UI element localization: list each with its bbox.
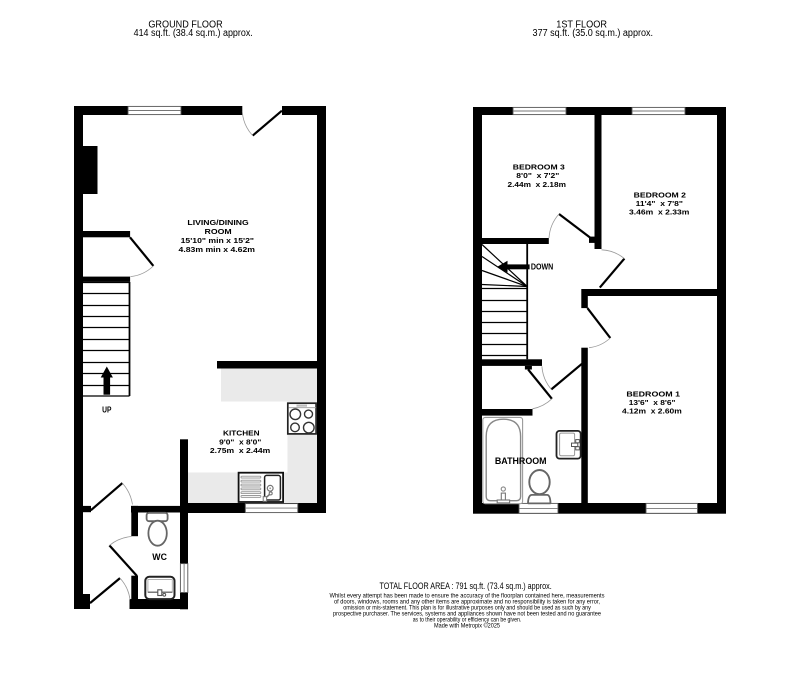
svg-text:2.44m x 2.18m: 2.44m x 2.18m — [508, 180, 567, 189]
svg-text:15'10" min x 15'2": 15'10" min x 15'2" — [181, 236, 254, 245]
svg-text:BATHROOM: BATHROOM — [495, 455, 547, 466]
svg-text:414 sq.ft. (38.4 sq.m.) approx: 414 sq.ft. (38.4 sq.m.) approx. — [134, 28, 253, 39]
svg-text:UP: UP — [102, 405, 112, 414]
svg-text:ROOM: ROOM — [205, 227, 232, 236]
svg-text:WC: WC — [152, 551, 167, 562]
svg-text:9'0" x 8'0": 9'0" x 8'0" — [219, 437, 261, 446]
svg-text:DOWN: DOWN — [531, 262, 554, 271]
svg-text:2.75m x 2.44m: 2.75m x 2.44m — [210, 446, 271, 455]
svg-text:13'6" x 8'6": 13'6" x 8'6" — [629, 398, 676, 407]
svg-text:3.46m x 2.33m: 3.46m x 2.33m — [629, 208, 690, 217]
svg-text:4.83m min x 4.62m: 4.83m min x 4.62m — [179, 245, 256, 254]
svg-text:KITCHEN: KITCHEN — [223, 429, 260, 438]
svg-text:Made with Metropix ©2025: Made with Metropix ©2025 — [434, 622, 500, 630]
svg-text:377 sq.ft. (35.0 sq.m.) approx: 377 sq.ft. (35.0 sq.m.) approx. — [533, 28, 654, 39]
svg-text:TOTAL FLOOR AREA : 791 sq.ft.: TOTAL FLOOR AREA : 791 sq.ft. (73.4 sq.m… — [380, 581, 552, 591]
svg-text:LIVING/DINING: LIVING/DINING — [187, 218, 249, 227]
svg-text:BEDROOM 1: BEDROOM 1 — [626, 389, 680, 398]
svg-text:4.12m x 2.60m: 4.12m x 2.60m — [622, 407, 682, 416]
